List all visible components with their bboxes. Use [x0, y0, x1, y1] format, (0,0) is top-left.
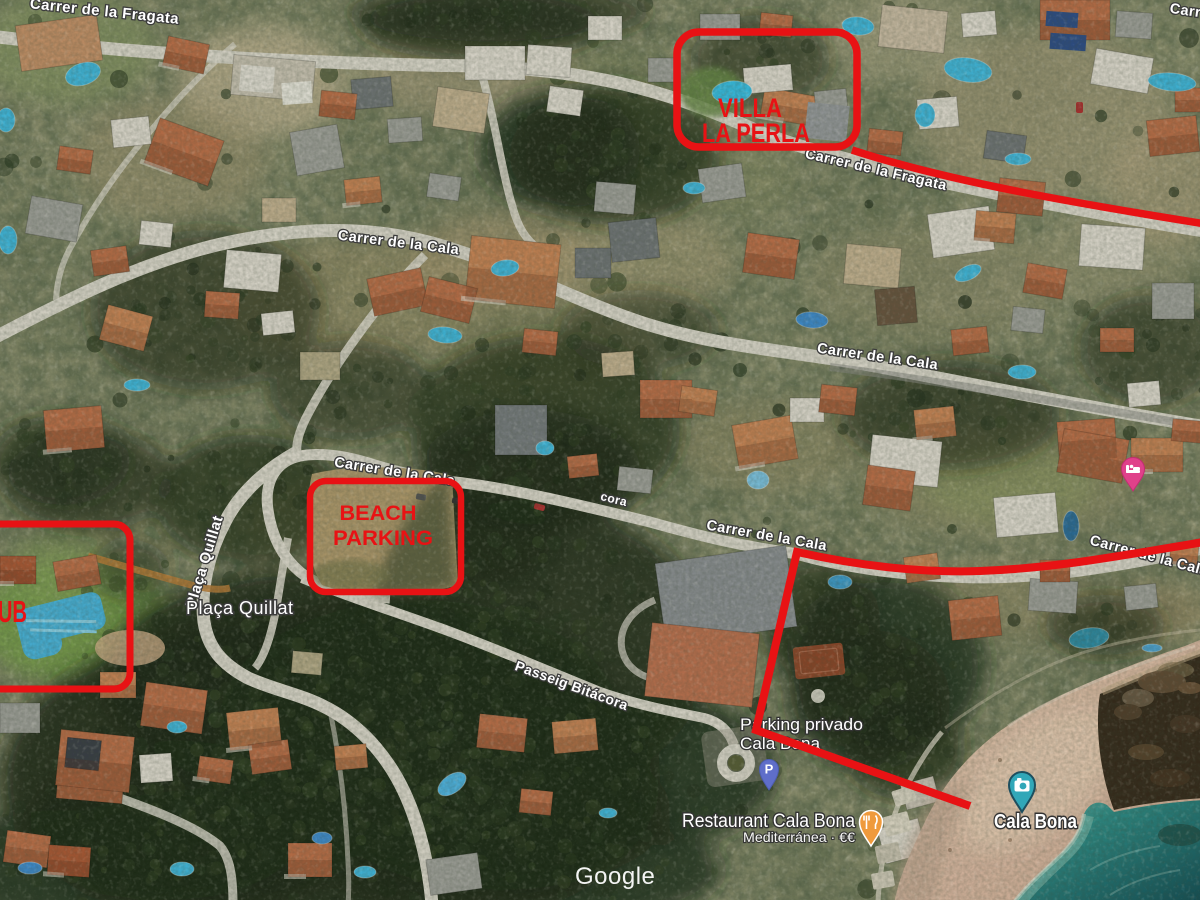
svg-text:Google: Google — [575, 863, 655, 890]
svg-text:BEACH: BEACH — [340, 502, 417, 525]
svg-text:Plaça Quillat: Plaça Quillat — [186, 598, 294, 618]
svg-text:Mediterránea · €€: Mediterránea · €€ — [743, 829, 855, 845]
svg-text:CLUB: CLUB — [0, 594, 27, 629]
svg-text:Cala Bona: Cala Bona — [994, 811, 1078, 833]
svg-text:LA PERLA: LA PERLA — [702, 118, 810, 148]
svg-text:P: P — [765, 762, 774, 777]
svg-text:PARKING: PARKING — [333, 527, 433, 550]
